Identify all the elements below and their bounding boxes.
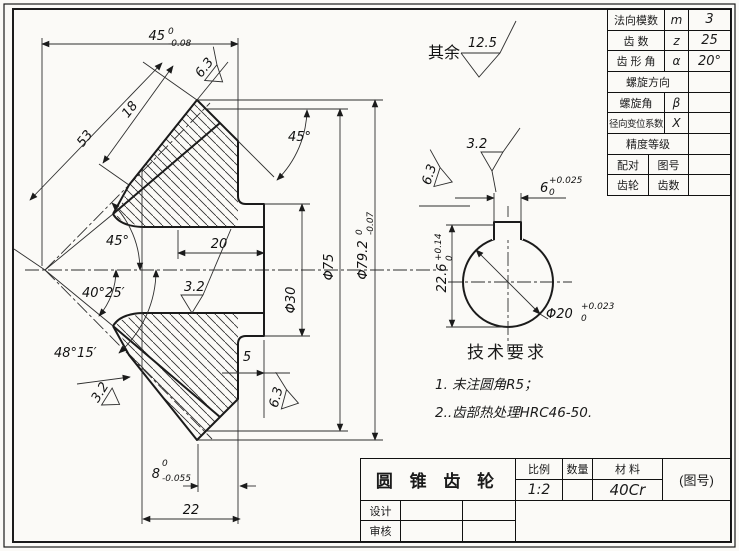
dim-dia-tip-sup: 0 (355, 229, 365, 235)
roughness-hub-face-value: 6.3 (267, 385, 287, 409)
scale-value: 1:2 (516, 480, 563, 501)
checker-date-cell (463, 521, 516, 541)
drawing-number: (图号) (663, 459, 730, 501)
param-label: 螺旋方向 (608, 72, 689, 92)
table-row: 齿 形 角 α 20° (608, 51, 730, 72)
designer-name-cell (401, 501, 463, 521)
general-roughness-value: 12.5 (468, 36, 497, 51)
dim-overall-length: 45 (148, 29, 165, 44)
param-value (689, 72, 730, 92)
keyway-detail-view: 6 +0.025 0 22.6 +0.14 0 Φ20 +0.023 0 3.2… (419, 128, 615, 352)
dim-key-depth-sub: 0 (445, 255, 455, 261)
designer-date-cell (463, 501, 516, 521)
table-row: 齿 数 z 25 (608, 31, 730, 52)
roughness-mark-bore-face: 6.3 (419, 150, 470, 206)
title-block: 圆 锥 齿 轮 比例 1:2 数量 材 料 40Cr (图号) 设计 审核 (360, 458, 731, 542)
dim-dia-tip: Φ79.2 (356, 240, 371, 279)
dim-key-width-sup: +0.025 (549, 176, 583, 186)
dim-dia-tip-sub: -0.07 (366, 211, 376, 235)
general-roughness-prefix: 其余 (428, 43, 460, 62)
roughness-tooth-upper-value: 6.3 (193, 55, 218, 81)
material-value: 40Cr (593, 480, 663, 501)
param-value: 20° (689, 51, 730, 71)
gear-parameter-table: 法向模数 m 3 齿 数 z 25 齿 形 角 α 20° 螺旋方向 螺旋角 β… (607, 9, 731, 196)
dim-bore-dia: Φ20 (546, 307, 573, 322)
dim-dia-outer: Φ75 (322, 254, 337, 281)
dim-boss-length: 5 (243, 350, 251, 365)
param-sublabel: 图号 (649, 155, 689, 175)
dim-key-width-sub: 0 (549, 188, 555, 198)
dim-dia-hub: Φ30 (284, 287, 299, 314)
material-label: 材 料 (593, 459, 663, 480)
dim-hub-total: 22 (183, 503, 200, 518)
param-value: 3 (689, 10, 730, 30)
param-symbol: α (665, 51, 689, 71)
scale-label: 比例 (516, 459, 563, 480)
table-row: 配对 图号 (608, 155, 730, 176)
dim-back-cone-angle: 45° (288, 130, 311, 145)
param-label: 齿 数 (608, 31, 665, 51)
param-symbol: X (665, 113, 689, 133)
general-roughness-note: 其余 12.5 (428, 21, 516, 77)
table-row: 精度等级 (608, 134, 730, 155)
dim-key-depth-sup: +0.14 (434, 233, 444, 261)
technical-requirements: 技术要求 1. 未注圆角R5； 2..齿部热处理HRC46-50. (435, 338, 695, 429)
tech-req-item: 1. 未注圆角R5； (435, 373, 695, 393)
dim-bore-dia-sup: +0.023 (581, 302, 615, 312)
param-label: 径向变位系数 (608, 113, 665, 133)
param-value (689, 175, 730, 195)
title-block-empty-area (516, 501, 730, 541)
roughness-bore-face-value: 6.3 (420, 163, 441, 187)
roughness-keyway-value: 3.2 (467, 137, 488, 152)
quantity-label: 数量 (563, 459, 593, 480)
dim-dia-tip-group: Φ79.2 0 -0.07 (355, 211, 376, 279)
roughness-bore-value: 3.2 (184, 280, 205, 295)
dim-root-angle: 40°25′ (82, 286, 125, 301)
param-value (689, 113, 730, 133)
param-value: 25 (689, 31, 730, 51)
drawing-title: 圆 锥 齿 轮 (361, 459, 516, 501)
dim-key-width: 6 (540, 181, 548, 196)
param-label: 齿 形 角 (608, 51, 665, 71)
table-row: 齿轮 齿数 (608, 175, 730, 195)
param-symbol: z (665, 31, 689, 51)
dim-cone-distance: 53 (74, 128, 96, 150)
dim-bore-dia-sub: 0 (581, 314, 587, 324)
table-row: 螺旋方向 (608, 72, 730, 93)
param-value (689, 93, 730, 113)
table-row: 螺旋角 β (608, 93, 730, 114)
dim-rim-step-sup: 0 (162, 459, 168, 469)
roughness-tooth-lower-value: 3.2 (89, 380, 113, 405)
param-symbol: m (665, 10, 689, 30)
dim-face-angle: 48°15′ (54, 346, 97, 361)
roughness-mark-keyway: 3.2 (467, 128, 520, 192)
param-label: 螺旋角 (608, 93, 665, 113)
designer-label: 设计 (361, 501, 401, 521)
roughness-mark-hub-face: 6.3 (267, 372, 305, 413)
param-label: 精度等级 (608, 134, 689, 154)
dim-rim-step-sub: -0.055 (162, 474, 191, 484)
param-sublabel: 齿数 (649, 175, 689, 195)
tech-req-heading: 技术要求 (467, 338, 695, 363)
roughness-mark-tooth-upper: 6.3 (193, 46, 237, 90)
dim-overall-length-sub: -0.08 (168, 39, 192, 49)
tech-req-item: 2..齿部热处理HRC46-50. (435, 401, 695, 421)
dim-face-width: 18 (119, 99, 141, 121)
param-value (689, 155, 730, 175)
param-symbol: β (665, 93, 689, 113)
param-value (689, 134, 730, 154)
checker-name-cell (401, 521, 463, 541)
dim-key-depth: 22.6 (435, 264, 450, 293)
table-row: 法向模数 m 3 (608, 10, 730, 31)
dim-overall-length-sup: 0 (168, 27, 174, 37)
param-label: 配对 (608, 155, 649, 175)
drawing-sheet: 45 0 -0.08 53 18 45° 40°25′ 48°15′ 45° 2… (0, 0, 739, 551)
quantity-value (563, 480, 593, 501)
dimension-labels: 45 0 -0.08 53 18 45° 40°25′ 48°15′ 45° 2… (54, 27, 376, 518)
dim-pitch-angle: 45° (106, 234, 129, 249)
dim-rim-step: 8 (152, 467, 160, 482)
roughness-mark-tooth-lower: 3.2 (89, 380, 125, 413)
table-row: 径向变位系数 X (608, 113, 730, 134)
param-label: 齿轮 (608, 175, 649, 195)
checker-label: 审核 (361, 521, 401, 541)
param-label: 法向模数 (608, 10, 665, 30)
